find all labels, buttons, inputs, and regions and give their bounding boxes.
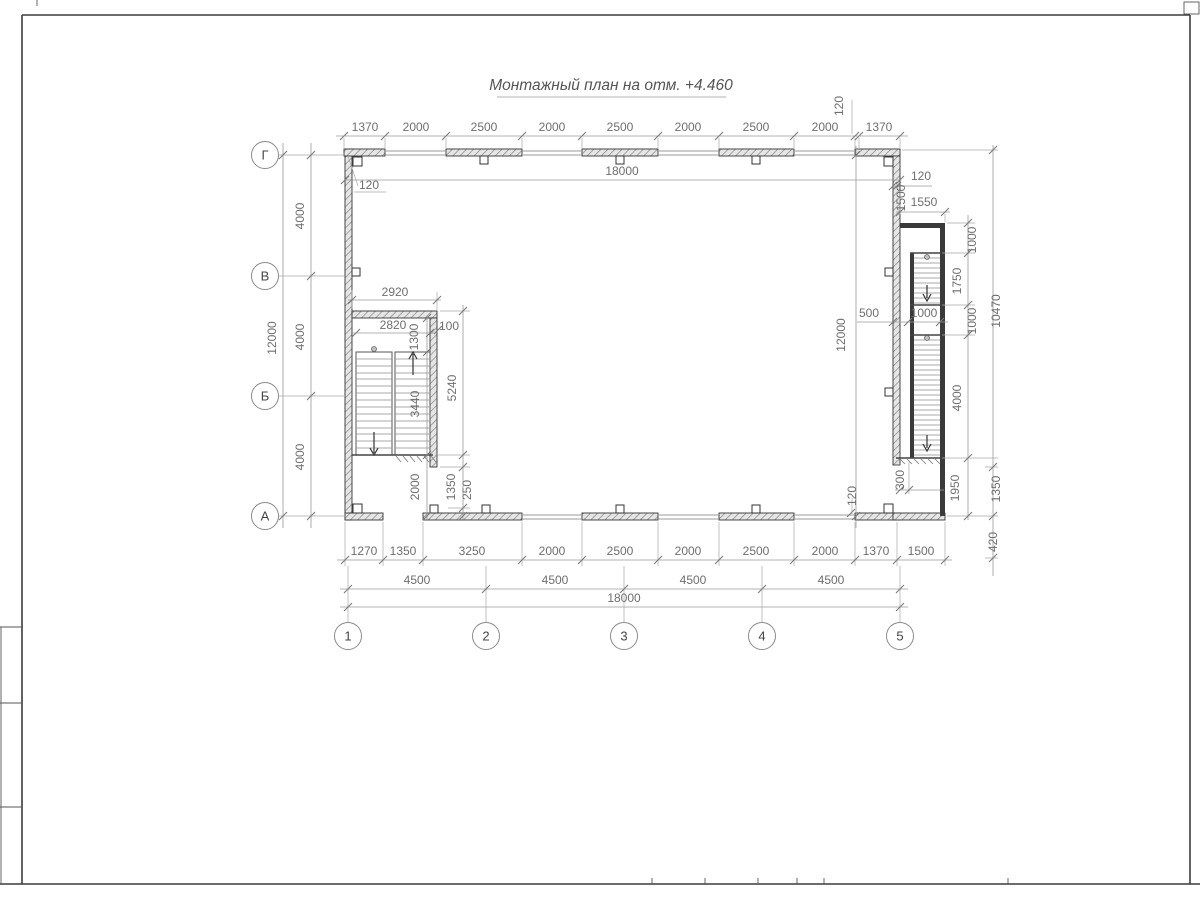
dim-label: 2920 <box>382 285 409 299</box>
dim-label: 4500 <box>680 573 707 587</box>
drawing-title: Монтажный план на отм. +4.460 <box>489 77 733 97</box>
dim-label: 1500 <box>894 184 908 211</box>
dim-label: 2000 <box>675 544 702 558</box>
dim-label: 12000 <box>265 321 279 355</box>
axis-row-label: А <box>261 509 270 524</box>
dim-label: 1350 <box>390 544 417 558</box>
stairwell-left <box>352 311 437 467</box>
dim-label: 1000 <box>911 306 938 320</box>
dim-label: 2820 <box>380 318 407 332</box>
dim-label: 250 <box>460 480 474 500</box>
dim-label: 1000 <box>965 307 979 334</box>
stair-start-dot <box>925 336 930 341</box>
axis-col-label: 1 <box>344 629 351 644</box>
dim-label: 300 <box>893 470 907 490</box>
drawing-sheet: Монтажный план на отм. +4.460 <box>0 0 1200 900</box>
dim-label: 2000 <box>812 544 839 558</box>
dim-label: 2000 <box>539 544 566 558</box>
dim-label: 1000 <box>965 226 979 253</box>
dim-label: 2500 <box>743 544 770 558</box>
dim-label: 1950 <box>948 474 962 501</box>
dim-label: 1750 <box>950 267 964 294</box>
dim-label: 3440 <box>408 390 422 417</box>
dim-label: 2500 <box>607 120 634 134</box>
page-title: Монтажный план на отм. +4.460 <box>489 77 733 94</box>
dim-label: 120 <box>845 486 859 506</box>
stair-start-dot <box>925 255 930 260</box>
dim-label: 1350 <box>989 475 1003 502</box>
dim-label: 4000 <box>950 384 964 411</box>
stair-down-arrow <box>923 435 931 451</box>
dim-label: 1300 <box>407 323 421 350</box>
sheet-frame <box>0 0 1200 884</box>
dim-label: 12000 <box>834 318 848 352</box>
dim-label: 1270 <box>351 544 378 558</box>
dim-label: 2000 <box>539 120 566 134</box>
dim-label: 120 <box>911 169 931 183</box>
dim-label: 2500 <box>607 544 634 558</box>
window-lines <box>385 151 855 519</box>
dim-label: 2000 <box>408 473 422 500</box>
dim-label: 4000 <box>293 323 307 350</box>
dim-label: 2000 <box>812 120 839 134</box>
dim-label: 18000 <box>607 591 641 605</box>
dim-label: 1550 <box>911 195 938 209</box>
dim-label: 1370 <box>866 120 893 134</box>
dim-label: 4500 <box>542 573 569 587</box>
dim-label: 1370 <box>863 544 890 558</box>
dim-label: 3250 <box>459 544 486 558</box>
dim-label: 120 <box>832 96 846 116</box>
dim-label: 1370 <box>352 120 379 134</box>
dim-label: 4500 <box>404 573 431 587</box>
axis-col-label: 5 <box>896 629 903 644</box>
axis-col-label: 2 <box>482 629 489 644</box>
axis-row-label: В <box>261 269 270 284</box>
dim-label: 2500 <box>743 120 770 134</box>
dim-label: 5240 <box>445 374 459 401</box>
dim-label: 120 <box>359 178 379 192</box>
floor-plan-svg: Монтажный план на отм. +4.460 <box>0 0 1200 900</box>
dim-label: 1500 <box>908 544 935 558</box>
dim-label: 4500 <box>818 573 845 587</box>
dim-label: 1350 <box>444 473 458 500</box>
dim-label: 420 <box>986 532 1000 552</box>
dim-label: 2500 <box>471 120 498 134</box>
dim-label: 2000 <box>675 120 702 134</box>
dim-label: 500 <box>859 306 879 320</box>
dim-label: 4000 <box>293 202 307 229</box>
dim-label: 2000 <box>403 120 430 134</box>
axis-row-label: Г <box>261 148 268 163</box>
axis-row-label: Б <box>261 389 270 404</box>
axis-col-label: 4 <box>758 629 765 644</box>
dim-label: 100 <box>439 319 459 333</box>
dim-label: 4000 <box>293 443 307 470</box>
stair-start-dot <box>372 347 377 352</box>
axis-col-label: 3 <box>620 629 627 644</box>
dim-label: 10470 <box>989 294 1003 328</box>
dim-label: 18000 <box>605 164 639 178</box>
